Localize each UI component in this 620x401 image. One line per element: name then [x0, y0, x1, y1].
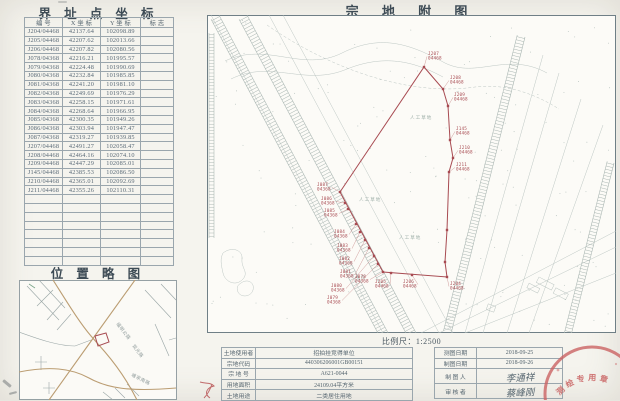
- coord-cell: 42216.21: [63, 54, 101, 63]
- coord-cell: 102092.69: [101, 177, 141, 186]
- coord-row: J082/0436842249.69101976.29: [25, 89, 174, 98]
- coord-cell: 42464.16: [63, 151, 101, 160]
- coord-cell: 42491.27: [63, 142, 101, 151]
- coord-cell: 101939.85: [101, 133, 141, 142]
- boundary-vertex-marker: [390, 272, 392, 274]
- coord-cell: 42232.84: [63, 71, 101, 80]
- coord-cell: J082/04368: [25, 89, 63, 98]
- coord-empty-row: [25, 203, 174, 212]
- coord-cell: 42300.35: [63, 115, 101, 124]
- coord-cell: 102074.10: [101, 151, 141, 160]
- info-label: 宗地代码: [222, 358, 256, 369]
- coord-table-body: 编 号X 坐 标Y 坐 标标 志J204/0446842137.64102098…: [25, 18, 174, 266]
- coord-cell: [141, 115, 174, 124]
- boundary-vertex-marker: [446, 276, 448, 278]
- coord-cell: 102058.47: [101, 142, 141, 151]
- boundary-vertex-marker: [382, 271, 384, 273]
- boundary-vertex-marker: [359, 231, 361, 233]
- coord-empty-cell: [63, 239, 101, 248]
- boundary-vertex-marker: [446, 229, 448, 231]
- coord-empty-cell: [25, 230, 63, 239]
- coord-cell: [141, 177, 174, 186]
- coord-cell: 102013.66: [101, 36, 141, 45]
- coord-cell: [141, 186, 174, 195]
- boundary-vertex-marker: [447, 105, 449, 107]
- coord-cell: J083/04368: [25, 98, 63, 107]
- coord-cell: 101966.95: [101, 107, 141, 116]
- boundary-coordinates-table: 编 号X 坐 标Y 坐 标标 志J204/0446842137.64102098…: [24, 17, 174, 266]
- terrain-label: 人工草地: [399, 234, 421, 241]
- coord-empty-row: [25, 221, 174, 230]
- coord-cell: 42258.15: [63, 98, 101, 107]
- coord-cell: J209/04468: [25, 159, 63, 168]
- coord-empty-cell: [63, 195, 101, 204]
- handwritten-mark: [196, 378, 222, 400]
- coord-empty-cell: [63, 212, 101, 221]
- coord-cell: 102086.50: [101, 168, 141, 177]
- scanned-parcel-document: 界 址 点 坐 标 编 号X 坐 标Y 坐 标标 志J204/044684213…: [0, 0, 620, 400]
- boundary-vertex-marker: [423, 66, 425, 68]
- coord-cell: 102098.89: [101, 28, 141, 37]
- coord-empty-row: [25, 212, 174, 221]
- coord-cell: J085/04368: [25, 115, 63, 124]
- info-value: 24109.04平方米: [256, 379, 413, 390]
- coord-cell: 42137.64: [63, 28, 101, 37]
- info-row: 宗地代码440306206001GB00151: [222, 358, 413, 369]
- coord-cell: [141, 159, 174, 168]
- coord-empty-cell: [101, 247, 141, 256]
- coord-cell: 101947.47: [101, 124, 141, 133]
- coord-cell: 101971.61: [101, 98, 141, 107]
- boundary-vertex-marker: [364, 239, 366, 241]
- coord-cell: 101985.85: [101, 71, 141, 80]
- coord-cell: 101981.10: [101, 80, 141, 89]
- coord-cell: [141, 36, 174, 45]
- coord-empty-cell: [101, 239, 141, 248]
- parcel-info-table: 土地使用者招拍挂竞得单位宗地代码440306206001GB00151宗 地 号…: [221, 347, 413, 401]
- boundary-vertex-marker: [339, 191, 341, 193]
- coord-cell: 42224.48: [63, 63, 101, 72]
- coord-cell: [141, 168, 174, 177]
- terrain-label: 人工草地: [359, 196, 381, 203]
- coord-cell: 42447.29: [63, 159, 101, 168]
- coord-row: J209/0446842447.29102085.01: [25, 159, 174, 168]
- coord-row: J084/0436842268.64101966.95: [25, 107, 174, 116]
- coord-cell: 42365.01: [63, 177, 101, 186]
- boundary-vertex-marker: [344, 202, 346, 204]
- coord-cell: [141, 151, 174, 160]
- coord-cell: J084/04368: [25, 107, 63, 116]
- coord-row: J086/0436842303.94101947.47: [25, 124, 174, 133]
- stamp-ring: [545, 347, 620, 400]
- info-value: 二类居住用地: [256, 390, 413, 401]
- coord-cell: [141, 63, 174, 72]
- coord-empty-cell: [25, 212, 63, 221]
- info-row: 用地面积24109.04平方米: [222, 379, 413, 390]
- coord-empty-cell: [63, 230, 101, 239]
- coord-row: J204/0446842137.64102098.89: [25, 28, 174, 37]
- coord-cell: J204/04468: [25, 28, 63, 37]
- coord-cell: J081/04368: [25, 80, 63, 89]
- coord-empty-cell: [101, 212, 141, 221]
- coord-empty-cell: [25, 239, 63, 248]
- location-sketch-map: 福明公路观光路塘家南路: [19, 280, 177, 400]
- coord-cell: J145/04468: [25, 168, 63, 177]
- coord-cell: 101976.29: [101, 89, 141, 98]
- coord-cell: J206/04468: [25, 45, 63, 54]
- boundary-vertex-marker: [411, 274, 413, 276]
- coord-cell: 42207.82: [63, 45, 101, 54]
- coord-cell: J086/04368: [25, 124, 63, 133]
- boundary-vertex-marker: [368, 247, 370, 249]
- info-value: 440306206001GB00151: [256, 358, 413, 369]
- coord-row: J078/0436842216.21101995.57: [25, 54, 174, 63]
- coord-empty-cell: [25, 203, 63, 212]
- coord-empty-cell: [141, 239, 174, 248]
- coord-cell: [141, 54, 174, 63]
- info-label: 宗 地 号: [222, 369, 256, 380]
- coord-empty-cell: [63, 221, 101, 230]
- coord-empty-cell: [25, 247, 63, 256]
- coord-row: J081/0436842241.20101981.10: [25, 80, 174, 89]
- coord-row: J207/0446842491.27102058.47: [25, 142, 174, 151]
- coord-empty-cell: [141, 230, 174, 239]
- boundary-vertex-marker: [452, 157, 454, 159]
- coord-row: J080/0436842232.84101985.85: [25, 71, 174, 80]
- boundary-vertex-marker: [442, 88, 444, 90]
- info-label: 土地使用者: [222, 348, 256, 359]
- stamp-rim-text: 测绘专用章: [554, 372, 612, 396]
- info-value: 招拍挂竞得单位: [256, 348, 413, 359]
- coord-cell: 42249.69: [63, 89, 101, 98]
- coord-empty-row: [25, 230, 174, 239]
- coord-cell: J078/04368: [25, 54, 63, 63]
- coord-row: J206/0446842207.82102080.56: [25, 45, 174, 54]
- info-label: 用地面积: [222, 379, 256, 390]
- coord-cell: [141, 80, 174, 89]
- coord-row: J211/0446842355.26102110.31: [25, 186, 174, 195]
- stamp-ink-speck: [557, 369, 560, 372]
- coord-cell: 42303.94: [63, 124, 101, 133]
- coord-header-row: 编 号X 坐 标Y 坐 标标 志: [25, 18, 174, 28]
- coord-cell: J087/04368: [25, 133, 63, 142]
- info-row: 宗 地 号A621-0044: [222, 369, 413, 380]
- coord-cell: 42385.53: [63, 168, 101, 177]
- coord-empty-cell: [141, 221, 174, 230]
- coord-cell: J211/04468: [25, 186, 63, 195]
- boundary-vertex-marker: [444, 261, 446, 263]
- boundary-vertex-marker: [377, 263, 379, 265]
- boundary-vertex-marker: [373, 255, 375, 257]
- coord-cell: [141, 107, 174, 116]
- coord-cell: [141, 28, 174, 37]
- coord-cell: 102085.01: [101, 159, 141, 168]
- boundary-vertex-marker: [355, 223, 357, 225]
- coord-empty-cell: [63, 203, 101, 212]
- coord-header-cell: 标 志: [141, 18, 174, 28]
- info-label: 制图日期: [435, 358, 477, 369]
- coord-row: J085/0436842300.35101949.26: [25, 115, 174, 124]
- coord-empty-cell: [101, 230, 141, 239]
- coord-cell: 42319.27: [63, 133, 101, 142]
- coord-cell: [141, 98, 174, 107]
- coord-empty-cell: [101, 195, 141, 204]
- coord-cell: [141, 45, 174, 54]
- coord-header-cell: Y 坐 标: [101, 18, 141, 28]
- coord-cell: [141, 71, 174, 80]
- coord-empty-cell: [101, 203, 141, 212]
- coord-cell: J079/04368: [25, 63, 63, 72]
- coord-cell: [141, 89, 174, 98]
- boundary-vertex-marker: [347, 208, 349, 210]
- coord-row: J208/0446842464.16102074.10: [25, 151, 174, 160]
- coord-cell: 101995.57: [101, 54, 141, 63]
- coord-row: J087/0436842319.27101939.85: [25, 133, 174, 142]
- coord-empty-cell: [101, 221, 141, 230]
- coord-cell: 101990.69: [101, 63, 141, 72]
- coord-cell: 101949.26: [101, 115, 141, 124]
- scan-smudge: [9, 391, 17, 395]
- coord-cell: 42207.62: [63, 36, 101, 45]
- info-label: 土地用途: [222, 390, 256, 401]
- coord-empty-cell: [25, 221, 63, 230]
- parcel-map: 人工草地人工草地人工草地水沟 J20704468J20804468J209044…: [207, 15, 616, 333]
- coord-cell: [141, 133, 174, 142]
- coord-row: J083/0436842258.15101971.61: [25, 98, 174, 107]
- coord-cell: [141, 124, 174, 133]
- coord-cell: 42241.20: [63, 80, 101, 89]
- coord-cell: 102080.56: [101, 45, 141, 54]
- coord-cell: [141, 142, 174, 151]
- coord-empty-cell: [141, 203, 174, 212]
- scan-smudge: [58, 1, 67, 3]
- coord-header-cell: 编 号: [25, 18, 63, 28]
- coord-cell: J208/04468: [25, 151, 63, 160]
- info-row: 土地用途二类居住用地: [222, 390, 413, 401]
- coord-cell: J080/04368: [25, 71, 63, 80]
- coord-cell: 42355.26: [63, 186, 101, 195]
- info-label: 审 核 者: [435, 384, 477, 399]
- coord-cell: J207/04468: [25, 142, 63, 151]
- info-label: 制 图 人: [435, 369, 477, 384]
- coord-row: J145/0446842385.53102086.50: [25, 168, 174, 177]
- stamp-ink-speck: [615, 363, 617, 365]
- coord-header-cell: X 坐 标: [63, 18, 101, 28]
- coord-cell: 42268.64: [63, 107, 101, 116]
- coord-cell: J210/04468: [25, 177, 63, 186]
- boundary-vertex-marker: [449, 139, 451, 141]
- coord-empty-cell: [141, 247, 174, 256]
- coord-empty-cell: [63, 247, 101, 256]
- scan-smudge: [2, 379, 12, 388]
- coord-row: J205/0446842207.62102013.66: [25, 36, 174, 45]
- coord-row: J210/0446842365.01102092.69: [25, 177, 174, 186]
- coord-empty-row: [25, 247, 174, 256]
- info-label: 测图日期: [435, 348, 477, 359]
- red-seal-stamp: 测绘专用章: [536, 336, 620, 400]
- info-value: A621-0044: [256, 369, 413, 380]
- coord-empty-row: [25, 195, 174, 204]
- coord-empty-cell: [141, 195, 174, 204]
- boundary-vertex-marker: [448, 171, 450, 173]
- coord-cell: J205/04468: [25, 36, 63, 45]
- coord-empty-cell: [141, 212, 174, 221]
- info-row: 土地使用者招拍挂竞得单位: [222, 348, 413, 359]
- terrain-label: 人工草地: [410, 114, 432, 121]
- stamp-rim-text-holder: 测绘专用章: [554, 372, 612, 396]
- coord-empty-cell: [25, 195, 63, 204]
- coord-row: J079/0436842224.48101990.69: [25, 63, 174, 72]
- coord-cell: 102110.31: [101, 186, 141, 195]
- coord-empty-row: [25, 239, 174, 248]
